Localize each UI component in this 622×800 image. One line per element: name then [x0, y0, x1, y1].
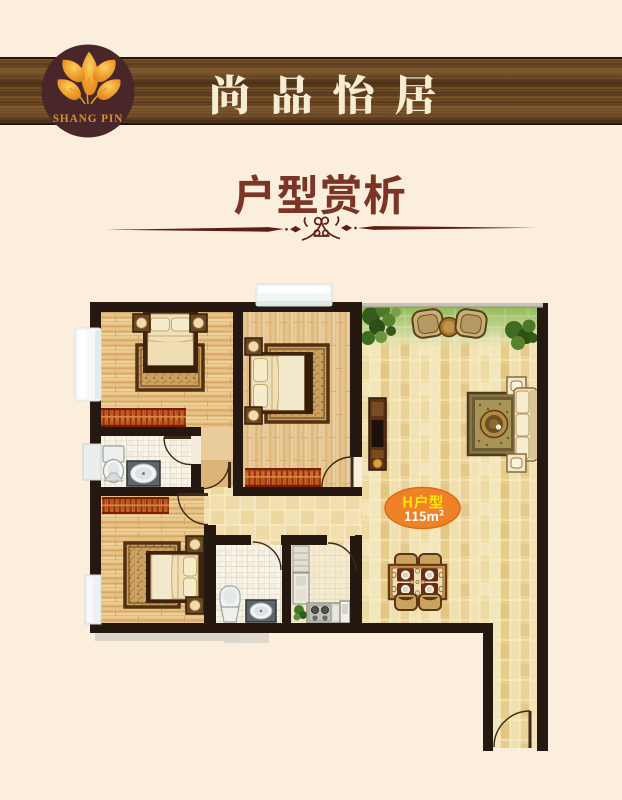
svg-text:SHANG PIN: SHANG PIN [53, 113, 124, 125]
